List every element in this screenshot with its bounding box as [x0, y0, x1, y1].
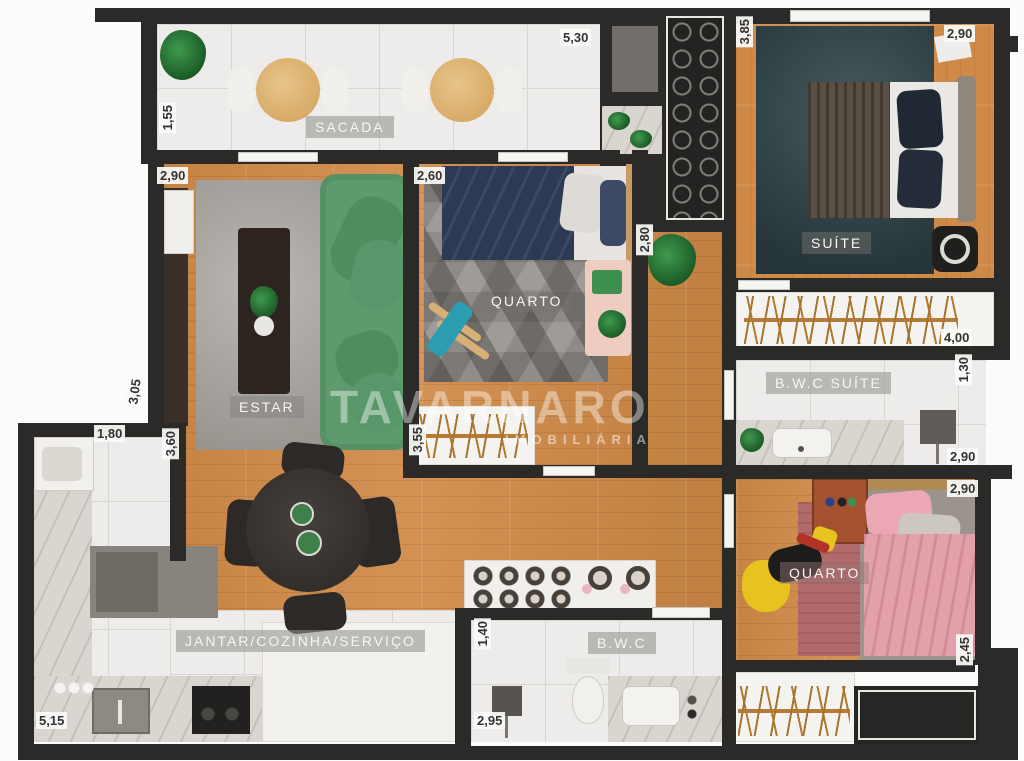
door-quarto2: [724, 494, 734, 548]
watermark-tagline: IMOBILIÁRIA: [505, 432, 652, 447]
dining-chair: [282, 591, 348, 635]
bed-suite-throw: [808, 82, 890, 218]
wall: [728, 660, 975, 672]
wall: [994, 16, 1010, 360]
coffee-table-bowl: [254, 316, 274, 336]
dim-closet-length: 4,00: [941, 329, 972, 346]
wall: [141, 8, 157, 164]
sacada-table: [256, 58, 320, 122]
toilet-bowl: [572, 676, 604, 724]
bottles: [52, 676, 96, 700]
label-quarto2: QUARTO: [780, 562, 869, 584]
sacada-chair: [322, 68, 348, 112]
dim-kitchen-depth: 3,60: [162, 428, 179, 459]
door-bwc-suite: [724, 370, 734, 420]
bed-suite-pillow: [897, 149, 944, 209]
dim-kitchen-width: 5,15: [36, 712, 67, 729]
toy-box: [592, 270, 622, 294]
door-bwc: [652, 607, 710, 618]
dim-estar-width: 2,90: [157, 167, 188, 184]
sacada-table: [430, 58, 494, 122]
door-suite: [738, 280, 790, 290]
shower-head-suite-icon: [920, 410, 956, 444]
kitchen-cabinet-door: [96, 552, 158, 612]
dim-bwc-depth: 1,40: [474, 618, 491, 649]
bed-quarto1-blanket: [442, 166, 574, 260]
wall: [18, 423, 34, 760]
label-sacada: SACADA: [306, 116, 394, 138]
closet-suite-hangers: [744, 296, 958, 344]
bwc-faucet: [684, 694, 700, 720]
sacada-chair: [228, 68, 254, 112]
sideboard-plates: [470, 564, 574, 610]
wall: [455, 608, 471, 760]
label-suite: SUÍTE: [802, 232, 871, 254]
wall: [148, 156, 164, 430]
dim-bwc-width: 2,95: [474, 712, 505, 729]
wall: [18, 744, 464, 760]
floor-plan: SACADA ESTAR QUARTO SUÍTE B.W.C SUÍTE QU…: [0, 0, 1024, 761]
dim-quarto1-width: 2,60: [414, 167, 445, 184]
wall: [722, 465, 1012, 479]
shower-stem-bwc: [505, 716, 508, 738]
dim-kitchen-top: 1,80: [94, 425, 125, 442]
door-sacada-quarto: [498, 152, 568, 162]
wall: [722, 744, 1018, 760]
dim-suite-width: 2,90: [944, 25, 975, 42]
stove-burners: [198, 700, 244, 728]
dim-bwc-suite-width: 2,90: [947, 448, 978, 465]
dim-hall-width: 2,80: [636, 224, 653, 255]
dim-sacada-width: 5,30: [560, 29, 591, 46]
bwc-sink: [622, 686, 680, 726]
wall: [141, 8, 621, 24]
entry-doormat: [612, 26, 658, 92]
desk-toys: [824, 496, 856, 508]
dim-estar-depth: 3,05: [124, 375, 145, 408]
closet-quarto2-hangers: [738, 686, 850, 736]
toilet-tank: [566, 658, 610, 674]
bwc-suite-sink: [772, 428, 832, 458]
bed-suite-pillow: [896, 89, 944, 150]
label-quarto1: QUARTO: [482, 290, 571, 312]
label-estar: ESTAR: [230, 396, 304, 418]
dim-sacada-depth: 1,55: [159, 102, 176, 133]
dining-plate: [290, 502, 314, 526]
watermark-name: TAVARNARO: [330, 380, 650, 434]
dim-quarto2-width: 2,90: [947, 480, 978, 497]
ceiling-fan-ring: [940, 234, 970, 264]
sideboard-cup: [620, 584, 630, 594]
wall: [455, 746, 736, 760]
bed-suite-headboard: [956, 76, 976, 222]
label-bwc: B.W.C: [588, 632, 656, 654]
dining-plate: [296, 530, 322, 556]
kitchen-faucet: [118, 700, 122, 724]
wall: [975, 479, 991, 665]
dim-entry-depth: 3,85: [736, 16, 753, 47]
dim-bwc-suite-depth: 1,30: [955, 354, 972, 385]
window-suite: [790, 10, 930, 22]
shower-stem: [936, 444, 939, 464]
sacada-chair: [496, 68, 522, 112]
wardrobe-quarto2: [858, 690, 976, 740]
laundry-sink-basin: [42, 447, 82, 481]
dim-quarto2-depth: 2,45: [956, 634, 973, 665]
decor-panel: [666, 16, 724, 220]
label-jantar: JANTAR/COZINHA/SERVIÇO: [176, 630, 425, 652]
door-sacada-estar: [238, 152, 318, 162]
bwc-suite-faucet: [798, 446, 804, 452]
door-hall: [543, 466, 595, 476]
bed-quarto1-pillow-navy: [600, 180, 626, 246]
sacada-chair: [402, 68, 428, 112]
sideboard-cup: [582, 584, 592, 594]
label-bwc-suite: B.W.C SUÍTE: [766, 372, 891, 394]
media-unit: [164, 190, 194, 254]
